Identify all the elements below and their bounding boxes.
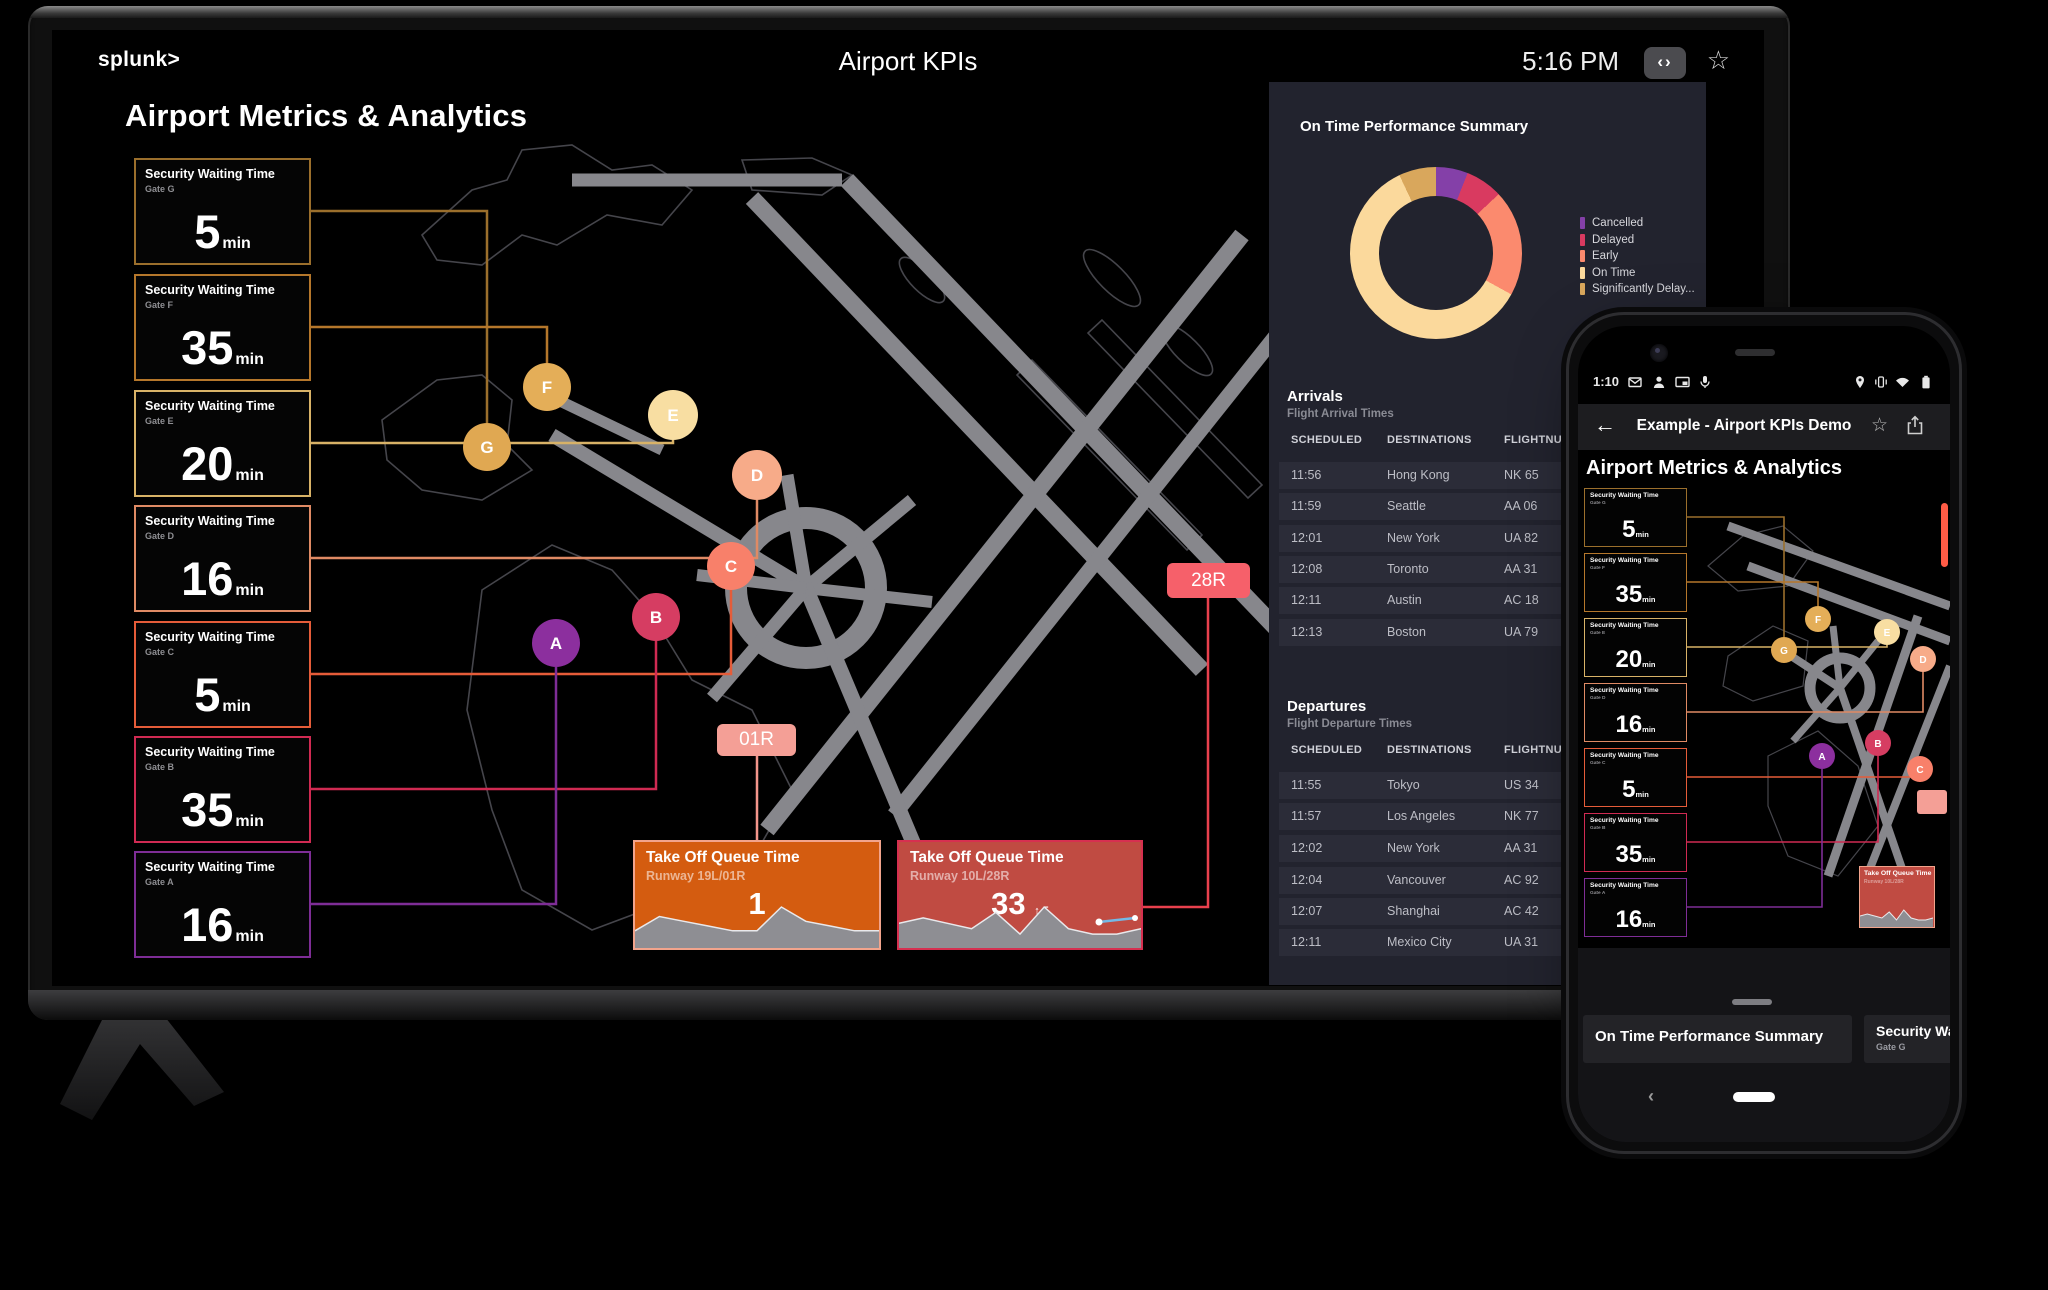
- legend-item[interactable]: Early: [1580, 248, 1695, 265]
- security-card-gate-c[interactable]: Security Waiting TimeGate C 5min: [1584, 748, 1687, 807]
- svg-text:A: A: [1818, 752, 1825, 763]
- stage: splunk> Airport KPIs 5:16 PM ‹› ☆ Airpor…: [0, 0, 2048, 1290]
- security-card-gate-a[interactable]: Security Waiting TimeGate A 16min: [1584, 878, 1687, 937]
- card-value: 5min: [136, 671, 309, 718]
- sheet-card-ontime[interactable]: On Time Performance Summary: [1583, 1015, 1852, 1063]
- back-arrow-icon[interactable]: ←: [1594, 412, 1616, 438]
- ontime-summary-title: On Time Performance Summary: [1300, 118, 1528, 135]
- connector-gate-a: [311, 667, 556, 904]
- gate-marker-d[interactable]: D: [732, 450, 782, 500]
- svg-text:B: B: [650, 608, 662, 627]
- wifi-icon: [1895, 375, 1910, 389]
- security-card-gate-g[interactable]: Security Waiting Time Gate G 5min: [134, 158, 311, 265]
- card-gate: Gate F: [145, 300, 173, 310]
- phone-status-bar: 1:10: [1578, 370, 1950, 396]
- legend-item[interactable]: Significantly Delay...: [1580, 281, 1695, 298]
- connector-gate-b: [311, 641, 656, 789]
- favorite-star-icon[interactable]: ☆: [1871, 414, 1888, 437]
- security-card-gate-d[interactable]: Security Waiting Time Gate D 16min: [134, 505, 311, 612]
- card-value: 16min: [136, 901, 309, 948]
- security-card-gate-d[interactable]: Security Waiting TimeGate D 16min: [1584, 683, 1687, 742]
- svg-text:C: C: [1916, 765, 1923, 776]
- ontime-legend: Cancelled Delayed Early On Time Signific…: [1580, 215, 1695, 298]
- legend-swatch: [1580, 217, 1585, 229]
- tv-bezel-bottom: [28, 990, 1790, 1020]
- phone-app-title: Example - Airport KPIs Demo: [1622, 417, 1866, 435]
- arrivals-title: Arrivals: [1287, 388, 1343, 405]
- takeoff-title: Take Off Queue Time: [910, 849, 1064, 867]
- forecast-segment: [1099, 918, 1135, 922]
- security-card-gate-g[interactable]: Security Waiting TimeGate G 5min: [1584, 488, 1687, 547]
- gate-marker-g[interactable]: G: [463, 423, 511, 471]
- svg-text:D: D: [1919, 655, 1926, 666]
- security-card-gate-e[interactable]: Security Waiting Time Gate E 20min: [134, 390, 311, 497]
- card-title: Security Waiting Time: [145, 630, 275, 644]
- card-title: Security Waiting Time: [145, 860, 275, 874]
- departures-subtitle: Flight Departure Times: [1287, 718, 1412, 730]
- card-gate: Gate G: [145, 184, 175, 194]
- phone-device: 1:10 ← Example - Airport KPIs Demo ☆ Air…: [1566, 312, 1962, 1154]
- card-gate: Gate B: [145, 762, 174, 772]
- phone-app-bar: ← Example - Airport KPIs Demo ☆: [1578, 404, 1950, 450]
- gate-marker-c[interactable]: C: [707, 542, 755, 590]
- runway-label-01r-mini: [1917, 790, 1947, 814]
- drag-handle[interactable]: [1732, 999, 1772, 1005]
- card-title: Security Waiting Time: [145, 514, 275, 528]
- card-title: Security Waiting Time: [145, 399, 275, 413]
- location-icon: [1854, 375, 1866, 389]
- card-value: 35min: [136, 786, 309, 833]
- col-destinations[interactable]: DESTINATIONS: [1387, 434, 1472, 446]
- takeoff-title: Take Off Queue Time: [646, 849, 800, 867]
- svg-text:C: C: [725, 557, 737, 576]
- phone-clock: 1:10: [1593, 374, 1619, 389]
- svg-text:B: B: [1874, 739, 1881, 750]
- ontime-donut[interactable]: [1350, 167, 1522, 339]
- card-value: 5min: [136, 208, 309, 255]
- col-scheduled[interactable]: SCHEDULED: [1291, 744, 1362, 756]
- svg-text:F: F: [542, 378, 552, 397]
- takeoff-sparkline: [635, 900, 879, 948]
- takeoff-queue-card-28r[interactable]: Take Off Queue Time Runway 10L/28R 33 ↑ …: [897, 840, 1143, 950]
- legend-swatch: [1580, 267, 1585, 279]
- security-card-gate-b[interactable]: Security Waiting Time Gate B 35min: [134, 736, 311, 843]
- pip-icon: [1675, 375, 1690, 389]
- map-runways: [1728, 526, 1950, 886]
- scroll-indicator[interactable]: [1941, 503, 1948, 567]
- card-value: 20min: [136, 440, 309, 487]
- takeoff-queue-card-mini[interactable]: Take Off Queue Time Runway 10L/28R: [1859, 866, 1935, 928]
- card-gate: Gate C: [145, 647, 174, 657]
- card-gate: Gate A: [145, 877, 174, 887]
- security-card-gate-a[interactable]: Security Waiting Time Gate A 16min: [134, 851, 311, 958]
- legend-swatch: [1580, 250, 1585, 262]
- connector-gate-d: [311, 500, 757, 558]
- takeoff-subtitle: Runway 19L/01R: [646, 869, 745, 883]
- nav-back-icon[interactable]: ‹: [1648, 1086, 1654, 1107]
- card-title: Security Waiting Time: [145, 745, 275, 759]
- svg-text:F: F: [1815, 615, 1821, 626]
- card-gate: Gate E: [145, 416, 174, 426]
- tv-device: splunk> Airport KPIs 5:16 PM ‹› ☆ Airpor…: [28, 6, 1790, 1020]
- card-title: Security Waiting Time: [145, 167, 275, 181]
- runway-label-01r[interactable]: 01R: [717, 724, 796, 756]
- gate-connectors: [1687, 517, 1923, 907]
- vibrate-icon: [1874, 375, 1888, 389]
- svg-text:G: G: [480, 438, 493, 457]
- sheet-card-security[interactable]: Security Waiting Time Gate G: [1864, 1015, 1950, 1063]
- security-card-gate-e[interactable]: Security Waiting TimeGate E 20min: [1584, 618, 1687, 677]
- gate-marker-b[interactable]: B: [632, 593, 680, 641]
- share-icon[interactable]: [1906, 415, 1924, 435]
- tv-screen: splunk> Airport KPIs 5:16 PM ‹› ☆ Airpor…: [52, 30, 1764, 986]
- svg-text:A: A: [550, 634, 562, 653]
- gate-marker-f[interactable]: F: [523, 363, 571, 411]
- tv-bezel-top: [28, 6, 1790, 18]
- card-value: 16min: [136, 555, 309, 602]
- bottom-sheet: On Time Performance Summary Security Wai…: [1578, 948, 1950, 1142]
- legend-item[interactable]: On Time: [1580, 265, 1695, 282]
- security-card-gate-f[interactable]: Security Waiting Time Gate F 35min: [134, 274, 311, 381]
- tv-stand: [46, 1008, 236, 1128]
- legend-swatch: [1580, 283, 1585, 295]
- takeoff-queue-card-01r[interactable]: Take Off Queue Time Runway 19L/01R 1: [633, 840, 881, 950]
- runway-label-28r[interactable]: 28R: [1167, 563, 1250, 598]
- legend-item[interactable]: Delayed: [1580, 232, 1695, 249]
- legend-item[interactable]: Cancelled: [1580, 215, 1695, 232]
- col-destinations[interactable]: DESTINATIONS: [1387, 744, 1472, 756]
- contacts-icon: [1652, 375, 1666, 389]
- connector-gate-f: [311, 327, 547, 363]
- takeoff-sparkline-mini: [1860, 903, 1933, 927]
- card-gate: Gate D: [145, 531, 174, 541]
- legend-swatch: [1580, 234, 1585, 246]
- nav-home-pill[interactable]: [1733, 1092, 1775, 1102]
- svg-text:E: E: [1884, 628, 1891, 639]
- front-camera: [1650, 344, 1668, 362]
- card-value: 35min: [136, 324, 309, 371]
- gate-marker-e[interactable]: E: [648, 390, 698, 440]
- svg-text:E: E: [667, 406, 678, 425]
- security-card-gate-c[interactable]: Security Waiting Time Gate C 5min: [134, 621, 311, 728]
- phone-screen: 1:10 ← Example - Airport KPIs Demo ☆ Air…: [1578, 326, 1950, 1142]
- arrivals-subtitle: Flight Arrival Times: [1287, 408, 1394, 420]
- gate-marker-a[interactable]: A: [532, 619, 580, 667]
- card-title: Security Waiting Time: [145, 283, 275, 297]
- security-card-gate-f[interactable]: Security Waiting TimeGate F 35min: [1584, 553, 1687, 612]
- connector-gate-g: [311, 211, 487, 423]
- security-card-gate-b[interactable]: Security Waiting TimeGate B 35min: [1584, 813, 1687, 872]
- gmail-icon: [1628, 375, 1642, 389]
- col-scheduled[interactable]: SCHEDULED: [1291, 434, 1362, 446]
- departures-title: Departures: [1287, 698, 1366, 715]
- mic-icon: [1699, 375, 1711, 389]
- earpiece-speaker: [1735, 349, 1775, 356]
- svg-text:G: G: [1780, 646, 1788, 657]
- takeoff-sparkline: [899, 900, 1141, 948]
- takeoff-subtitle: Runway 10L/28R: [910, 869, 1009, 883]
- battery-icon: [1921, 375, 1931, 389]
- svg-text:D: D: [751, 466, 763, 485]
